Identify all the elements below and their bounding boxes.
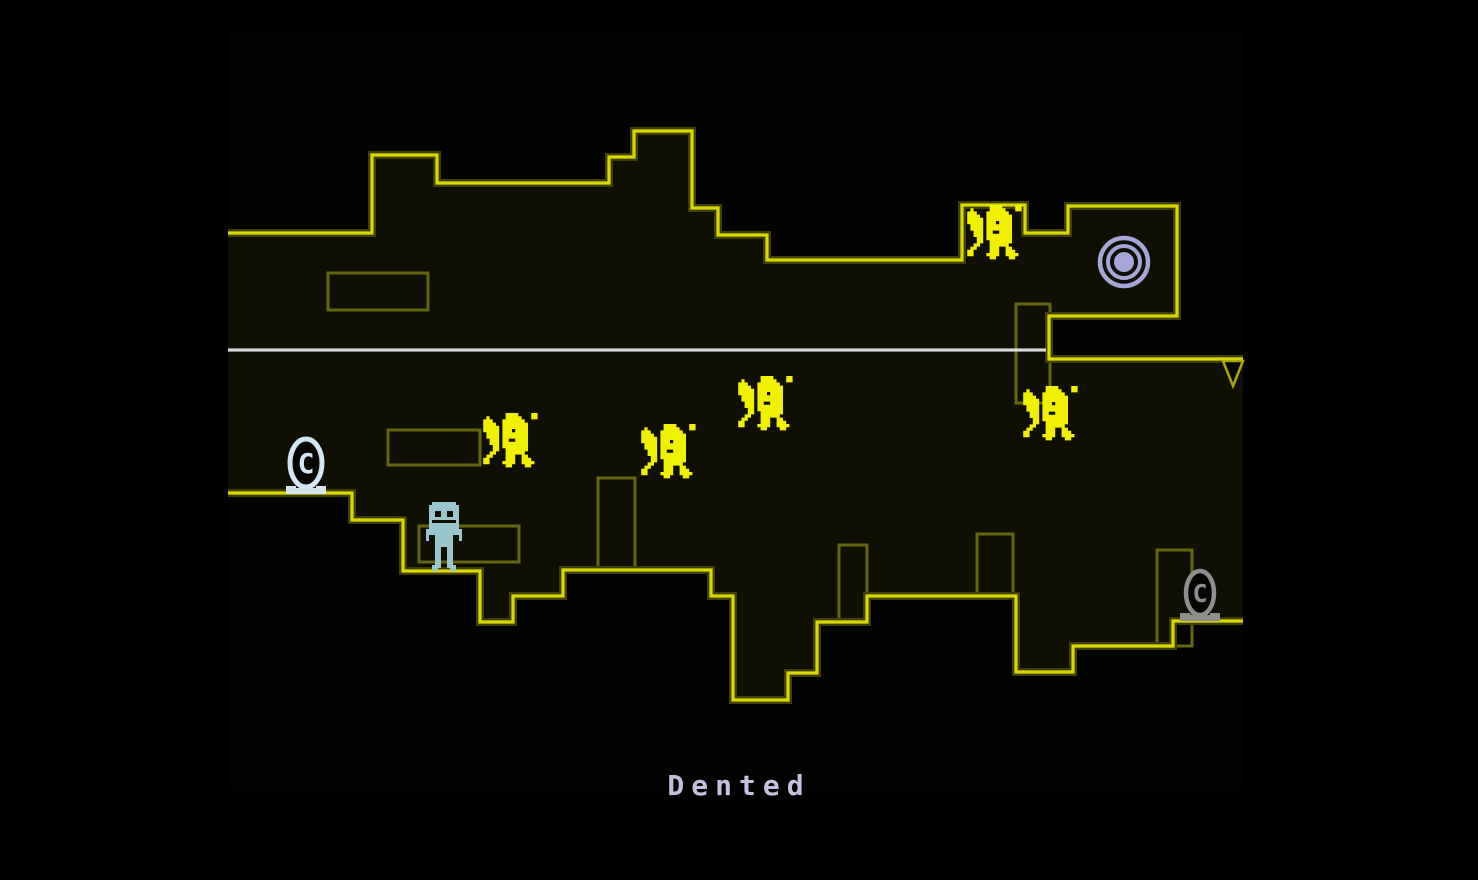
checkpoint-active-letter: C xyxy=(298,447,315,480)
checkpoint-inactive-letter: C xyxy=(1192,579,1207,608)
gravity-line xyxy=(228,348,1046,351)
vvvvvv-game-screen[interactable]: CC Dented xyxy=(0,0,1478,880)
warp-token-core xyxy=(1114,252,1134,272)
room-name-label: Dented xyxy=(228,769,1243,802)
game-canvas: CC xyxy=(0,0,1478,880)
